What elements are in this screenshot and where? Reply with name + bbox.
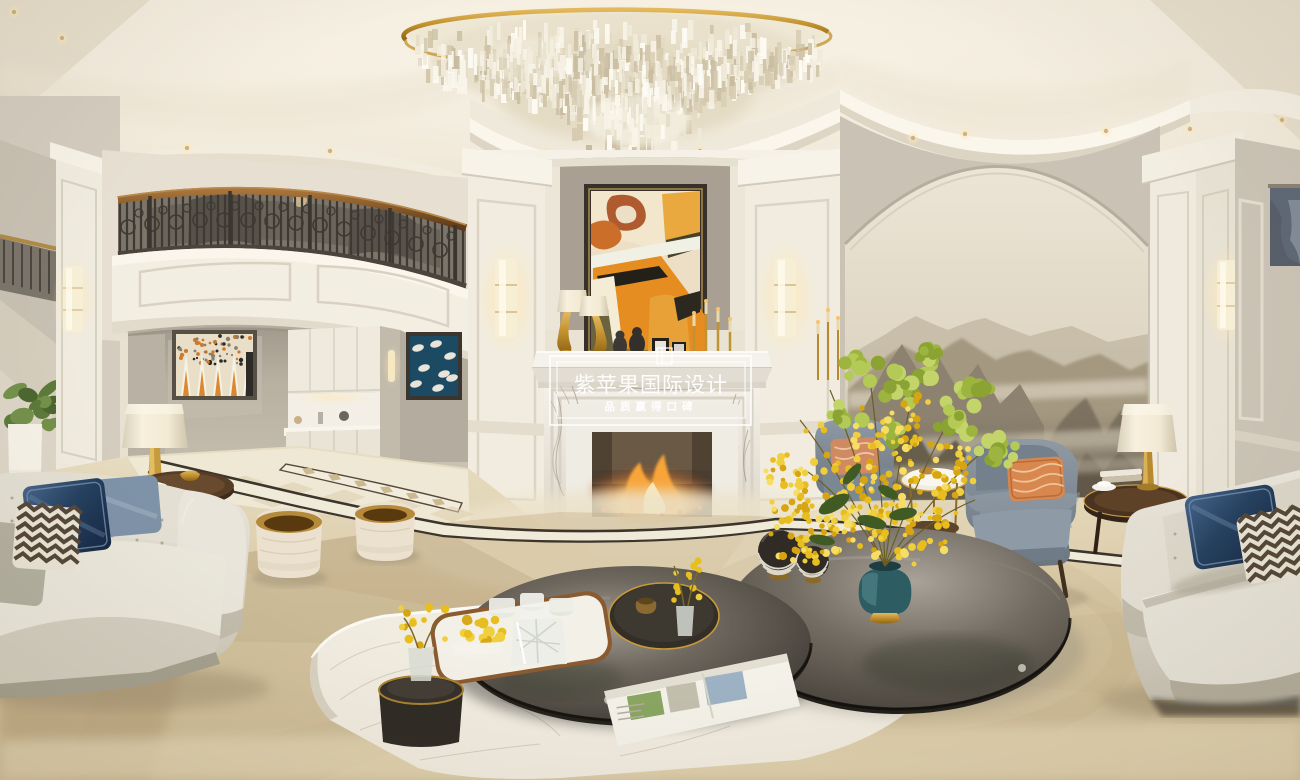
svg-text:品质赢得口碑: 品质赢得口碑 [605,400,698,413]
svg-text:紫苹果国际设计: 紫苹果国际设计 [574,374,728,397]
